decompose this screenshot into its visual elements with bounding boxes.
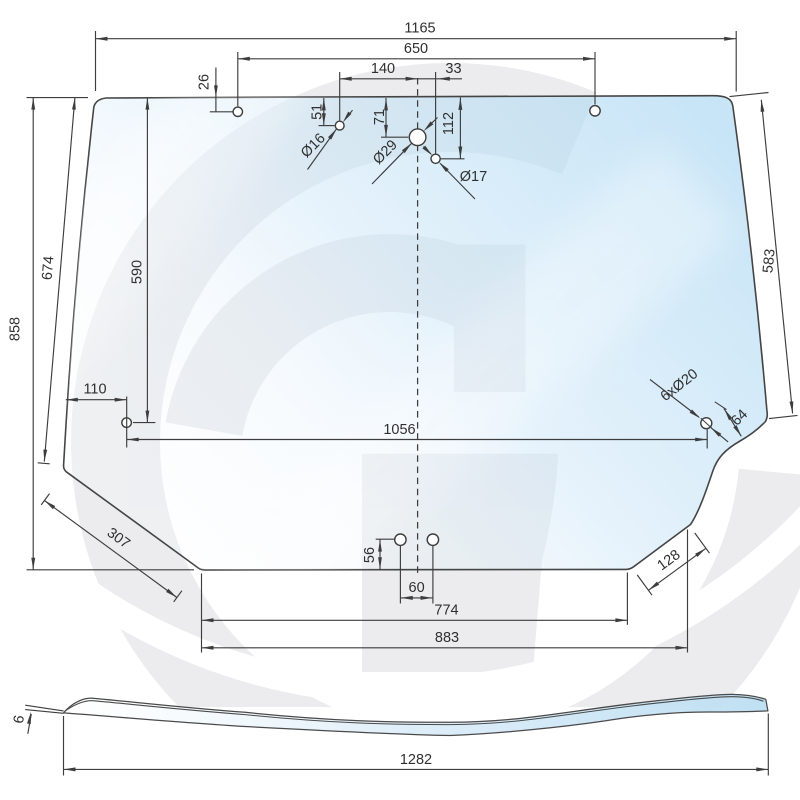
svg-text:33: 33 xyxy=(445,61,461,77)
svg-text:140: 140 xyxy=(371,61,395,77)
svg-text:883: 883 xyxy=(435,630,459,646)
svg-text:110: 110 xyxy=(83,381,106,397)
svg-text:112: 112 xyxy=(441,112,457,135)
svg-text:26: 26 xyxy=(197,74,213,90)
svg-text:590: 590 xyxy=(130,260,146,284)
svg-text:71: 71 xyxy=(372,109,388,125)
svg-text:56: 56 xyxy=(362,547,378,563)
svg-text:1056: 1056 xyxy=(383,422,415,438)
svg-text:774: 774 xyxy=(434,603,458,619)
svg-text:674: 674 xyxy=(40,255,58,280)
svg-text:51: 51 xyxy=(309,104,325,120)
svg-text:583: 583 xyxy=(760,248,778,274)
svg-text:1165: 1165 xyxy=(404,21,435,37)
svg-text:Ø17: Ø17 xyxy=(460,169,487,185)
svg-text:858: 858 xyxy=(8,317,24,341)
svg-text:650: 650 xyxy=(404,41,428,57)
svg-text:60: 60 xyxy=(409,580,425,596)
svg-text:1282: 1282 xyxy=(400,752,432,768)
